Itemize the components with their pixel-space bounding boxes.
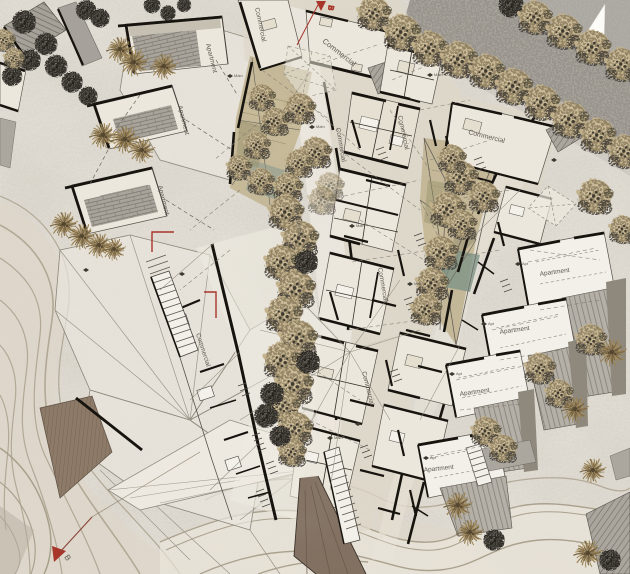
svg-text:Main: Main bbox=[434, 72, 443, 77]
svg-text:Apt: Apt bbox=[488, 321, 495, 326]
svg-text:Main: Main bbox=[334, 435, 343, 440]
svg-text:Main: Main bbox=[414, 281, 423, 286]
svg-text:Apt: Apt bbox=[522, 261, 529, 266]
svg-text:Apt: Apt bbox=[456, 371, 463, 376]
svg-text:Apt: Apt bbox=[430, 455, 437, 460]
svg-text:Main: Main bbox=[316, 124, 325, 129]
svg-text:Main: Main bbox=[234, 73, 243, 78]
svg-text:Main: Main bbox=[356, 223, 365, 228]
